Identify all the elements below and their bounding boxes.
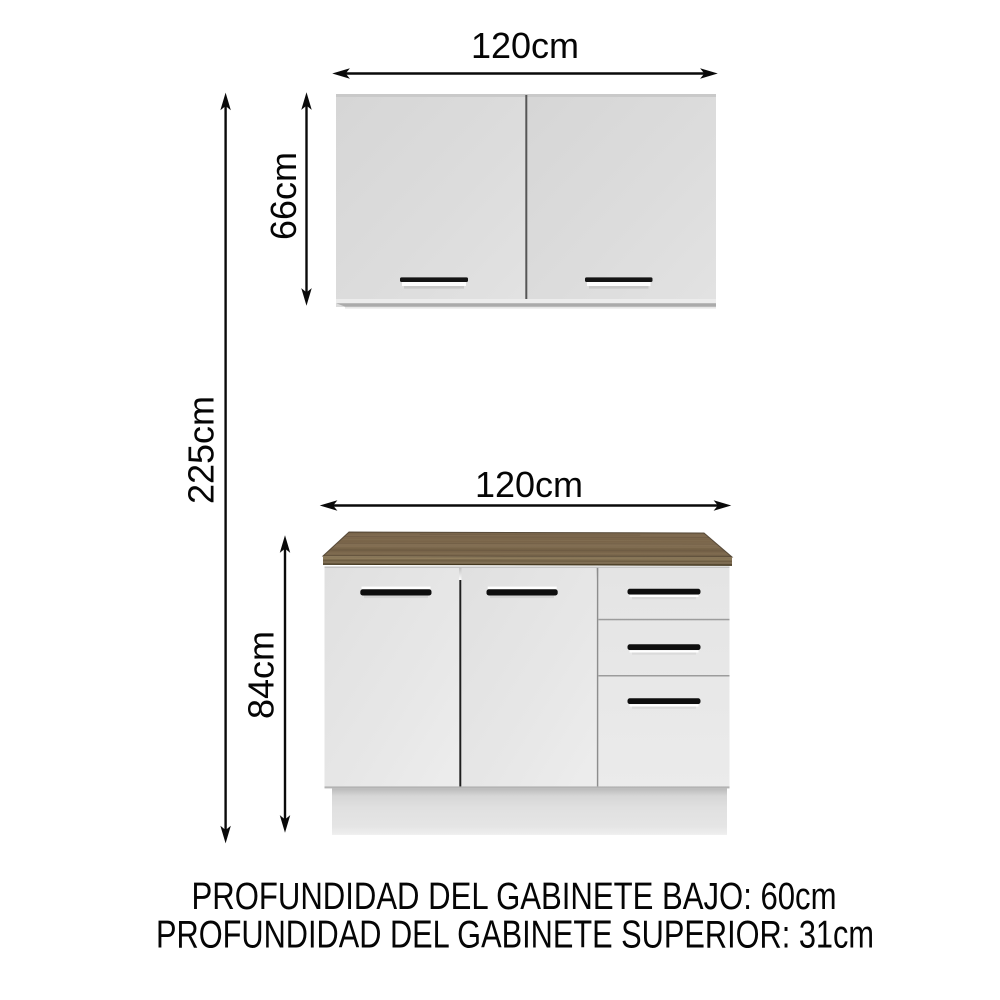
svg-text:84cm: 84cm	[241, 631, 282, 719]
svg-text:225cm: 225cm	[181, 396, 222, 504]
svg-text:120cm: 120cm	[471, 25, 579, 66]
svg-text:PROFUNDIDAD DEL GABINETE BAJO:: PROFUNDIDAD DEL GABINETE BAJO: 60cm	[192, 875, 837, 918]
svg-text:120cm: 120cm	[475, 464, 583, 505]
svg-text:66cm: 66cm	[263, 152, 304, 240]
svg-text:PROFUNDIDAD DEL GABINETE SUPER: PROFUNDIDAD DEL GABINETE SUPERIOR: 31cm	[156, 914, 874, 957]
